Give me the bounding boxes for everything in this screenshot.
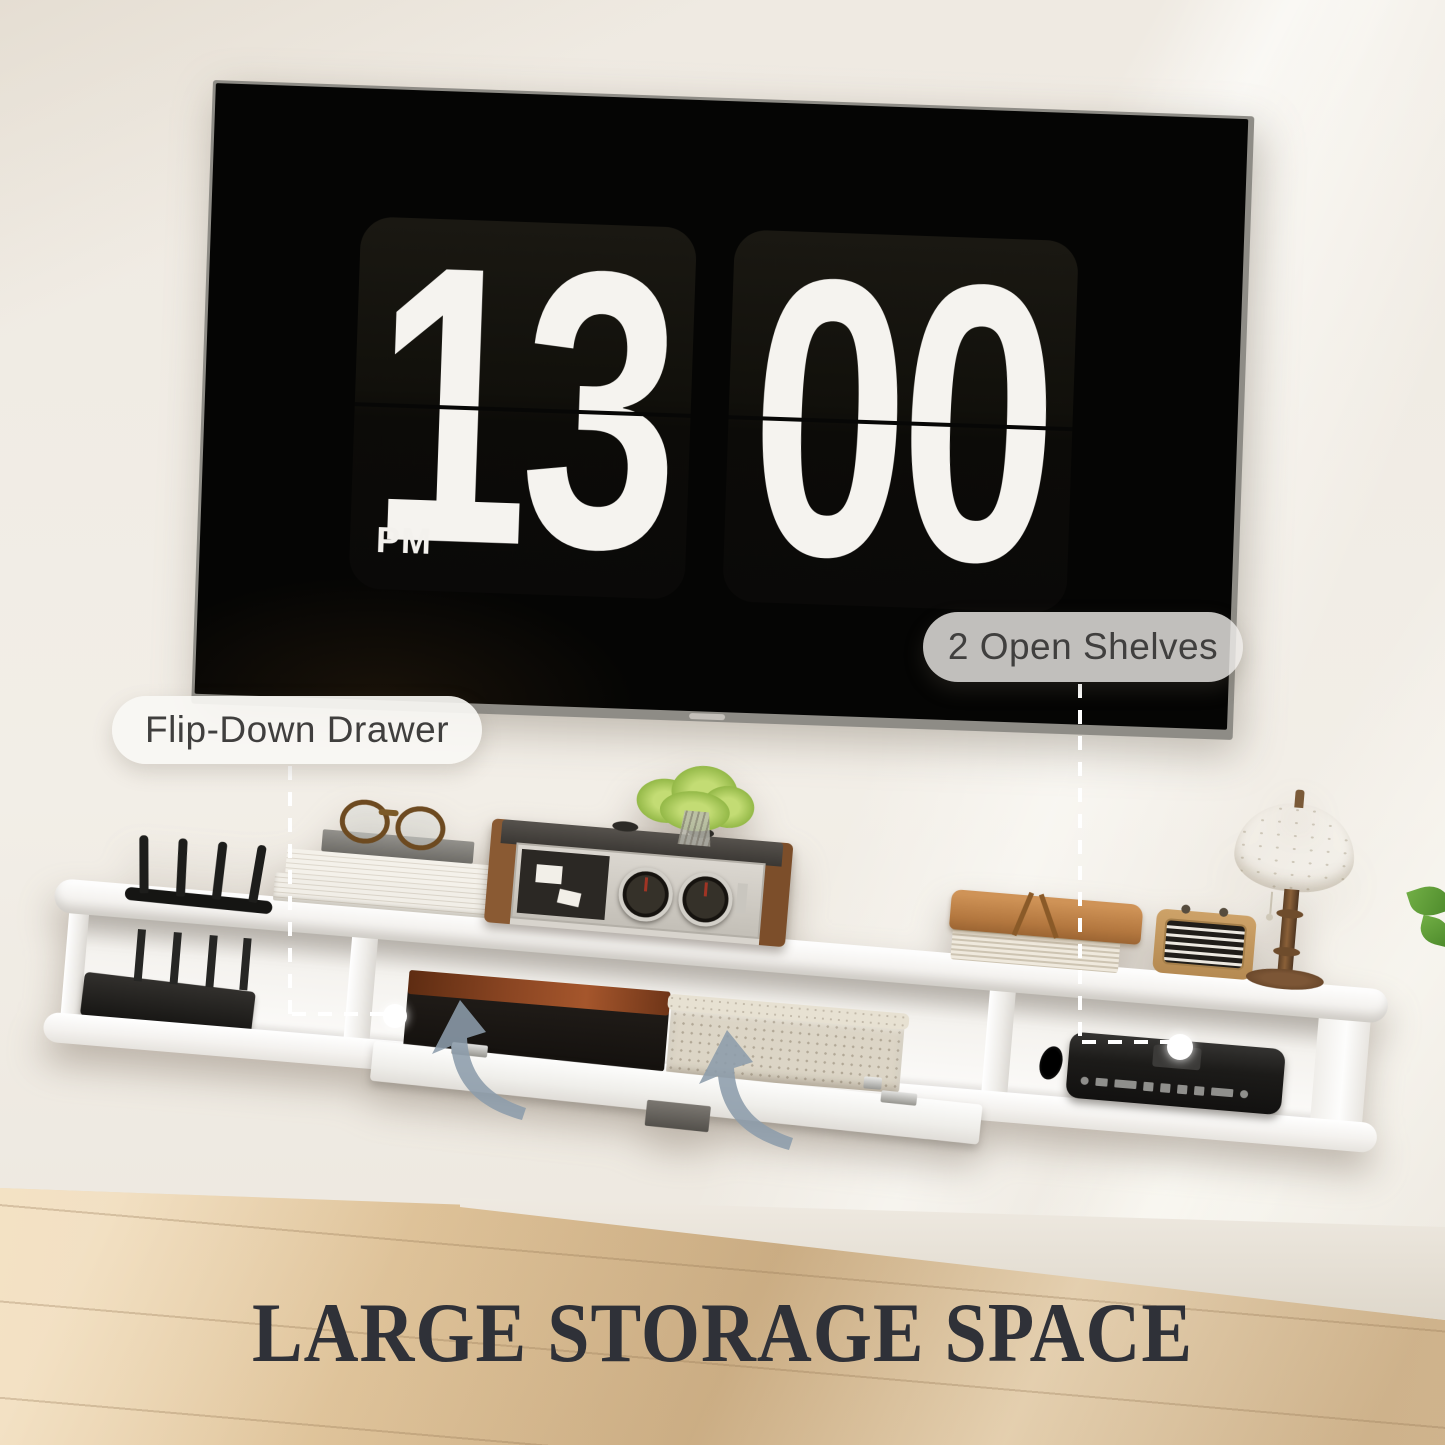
- flip-clock-minutes-card: 00: [722, 229, 1079, 613]
- tv-brand-logo: [689, 713, 725, 720]
- up-arrow-icon: [424, 996, 534, 1126]
- open-shelves-label: 2 Open Shelves: [948, 626, 1218, 668]
- callout-pill-flip-down-drawer: Flip-Down Drawer: [112, 696, 482, 764]
- lamp-base: [1245, 966, 1324, 992]
- journal-strap: [1039, 894, 1059, 939]
- radio-display-panel: [517, 849, 610, 920]
- callout-dashed-line: [292, 1012, 386, 1016]
- callout-dashed-line: [1078, 684, 1082, 1040]
- callout-dashed-line: [1082, 1040, 1170, 1044]
- drawer-hinge: [880, 1090, 917, 1106]
- radio-dial: [617, 865, 675, 923]
- lamp-shade: [1231, 799, 1358, 897]
- lamp-stem: [1277, 889, 1299, 976]
- flip-down-drawer-label: Flip-Down Drawer: [145, 709, 449, 751]
- basket-latch: [863, 1076, 882, 1089]
- table-lamp: [1219, 796, 1365, 1000]
- journal-strap: [1012, 892, 1034, 936]
- callout-dot: [1167, 1034, 1193, 1060]
- flip-clock-hours-card: 13 PM: [348, 216, 697, 599]
- media-player-ports: [1080, 1074, 1270, 1102]
- lamp-pull-chain: [1269, 892, 1273, 914]
- up-arrow-icon: [688, 1026, 804, 1156]
- callout-dot: [383, 1004, 407, 1028]
- houseplant-leaves: [1402, 882, 1445, 962]
- shelf-end-panel: [1310, 1018, 1370, 1122]
- potted-plant: [634, 760, 760, 846]
- page-title: LARGE STORAGE SPACE: [0, 1285, 1445, 1382]
- speaker-knob: [1181, 904, 1191, 914]
- router-antenna: [139, 835, 148, 893]
- meridiem-label: PM: [375, 519, 432, 563]
- radio-dial: [676, 870, 734, 928]
- radio-lever: [735, 883, 747, 914]
- callout-dashed-line: [288, 766, 292, 1014]
- callout-pill-open-shelves: 2 Open Shelves: [923, 612, 1243, 682]
